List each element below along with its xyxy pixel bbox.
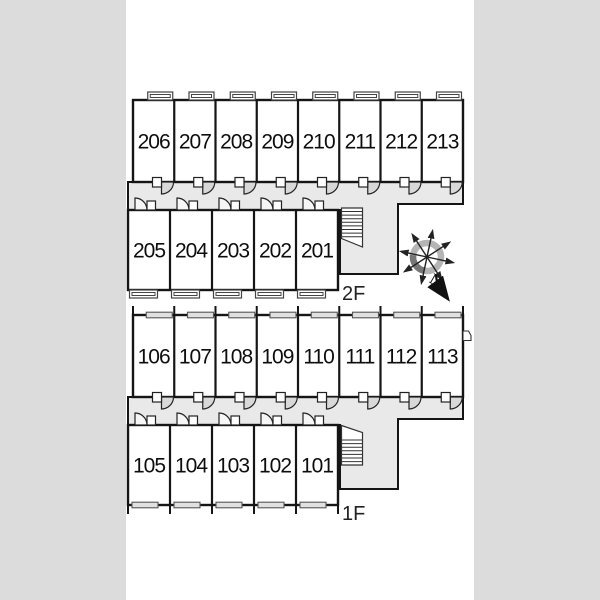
room-number: 204 [175, 240, 208, 263]
room-number: 108 [220, 346, 252, 369]
room-number: 206 [138, 131, 170, 154]
room-number: 207 [179, 131, 211, 154]
room-number: 111 [345, 346, 374, 369]
window-flush [311, 312, 337, 318]
room-number: 212 [385, 131, 417, 154]
room-number: 208 [220, 131, 252, 154]
room-number: 110 [303, 346, 334, 369]
window [172, 290, 200, 298]
door-leaf [147, 416, 156, 425]
door-leaf [231, 416, 240, 425]
window-flush [174, 502, 200, 508]
window [395, 92, 420, 100]
window-flush [353, 312, 379, 318]
door-leaf [400, 393, 409, 403]
window-flush [300, 502, 326, 508]
door-leaf [359, 393, 368, 403]
room-number: 105 [133, 455, 165, 478]
room-number: 102 [259, 455, 291, 478]
door-leaf [273, 201, 282, 210]
door-leaf [194, 178, 203, 188]
window-flush [146, 312, 172, 318]
room-number: 109 [261, 346, 293, 369]
floor-plan-svg: 2062072082092102112122132052042032022011… [0, 0, 600, 600]
room-number: 101 [301, 455, 333, 478]
room-number: 211 [345, 131, 376, 154]
door-leaf [153, 178, 162, 188]
side-door-flap [463, 331, 471, 341]
door-leaf [231, 201, 240, 210]
window-flush [188, 312, 214, 318]
door-leaf [441, 393, 450, 403]
room-number: 112 [386, 346, 417, 369]
door-leaf [276, 393, 285, 403]
room-number: 213 [426, 131, 458, 154]
window-flush [258, 502, 284, 508]
door-leaf [235, 178, 244, 188]
door-leaf [194, 393, 203, 403]
door-leaf [315, 201, 324, 210]
door-leaf [189, 201, 198, 210]
floor-label-2f: 2F [342, 283, 365, 305]
room-number: 113 [427, 346, 458, 369]
room-number: 209 [261, 131, 293, 154]
room-number: 104 [175, 455, 208, 478]
door-leaf [318, 178, 327, 188]
window [256, 290, 284, 298]
window [189, 92, 214, 100]
staircase [342, 426, 363, 466]
room-number: 202 [259, 240, 291, 263]
door-leaf [153, 393, 162, 403]
window [214, 290, 242, 298]
room-number: 205 [133, 240, 165, 263]
window [354, 92, 379, 100]
window-flush [216, 502, 242, 508]
window-flush [270, 312, 296, 318]
door-leaf [400, 178, 409, 188]
window-flush [229, 312, 255, 318]
door-leaf [359, 178, 368, 188]
door-leaf [276, 178, 285, 188]
door-leaf [189, 416, 198, 425]
window [230, 92, 255, 100]
room-number: 201 [301, 240, 333, 263]
room-number: 103 [217, 455, 249, 478]
window [130, 290, 158, 298]
window-flush [394, 312, 420, 318]
plan-sheet [126, 0, 474, 600]
floor-label-1f: 1F [342, 503, 365, 525]
room-number: 107 [179, 346, 211, 369]
window-flush [435, 312, 461, 318]
window [298, 290, 326, 298]
window [272, 92, 297, 100]
room-number: 210 [303, 131, 335, 154]
door-leaf [235, 393, 244, 403]
floor-plan-page: 2062072082092102112122132052042032022011… [0, 0, 600, 600]
window-flush [132, 502, 158, 508]
window [437, 92, 462, 100]
door-leaf [273, 416, 282, 425]
window [313, 92, 338, 100]
door-leaf [147, 201, 156, 210]
staircase-outline [342, 426, 363, 466]
door-leaf [441, 178, 450, 188]
room-number: 203 [217, 240, 249, 263]
door-leaf [315, 416, 324, 425]
room-number: 106 [138, 346, 170, 369]
door-leaf [318, 393, 327, 403]
window [148, 92, 173, 100]
